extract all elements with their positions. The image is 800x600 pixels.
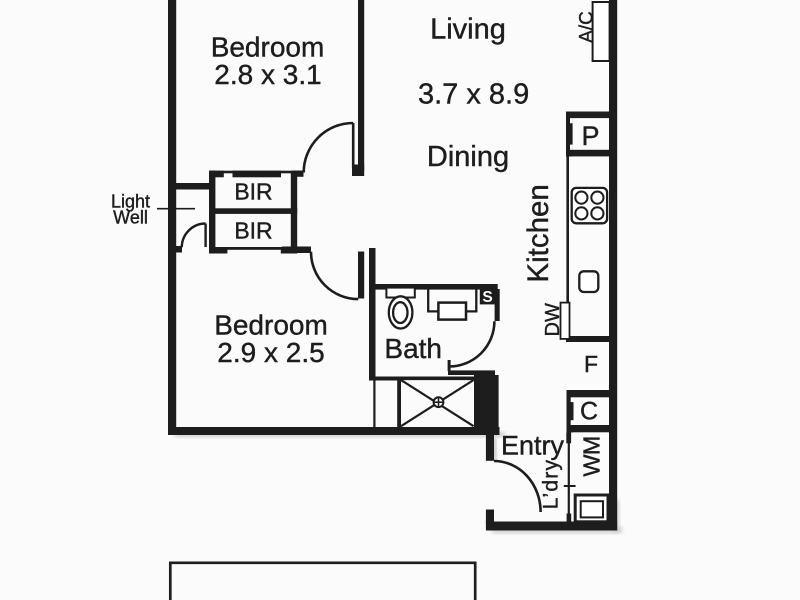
svg-text:Bedroom: Bedroom xyxy=(211,32,325,63)
svg-text:Well: Well xyxy=(113,208,148,228)
svg-text:L’dry: L’dry xyxy=(540,459,563,509)
svg-text:P: P xyxy=(581,121,599,151)
svg-text:F: F xyxy=(584,351,598,377)
svg-text:Bedroom: Bedroom xyxy=(214,310,328,341)
svg-text:C: C xyxy=(580,398,598,426)
svg-text:Dining: Dining xyxy=(427,141,509,173)
svg-text:Living: Living xyxy=(430,14,506,46)
svg-text:BIR: BIR xyxy=(234,218,272,244)
svg-text:WM: WM xyxy=(578,437,604,477)
svg-text:2.8 x 3.1: 2.8 x 3.1 xyxy=(214,59,321,90)
svg-text:S: S xyxy=(482,289,492,306)
svg-text:BIR: BIR xyxy=(234,179,272,205)
svg-text:3.7 x 8.9: 3.7 x 8.9 xyxy=(418,79,529,111)
svg-text:2.9 x 2.5: 2.9 x 2.5 xyxy=(217,337,324,368)
svg-text:Bath: Bath xyxy=(384,333,442,364)
svg-text:A/C: A/C xyxy=(577,11,598,43)
svg-text:Kitchen: Kitchen xyxy=(522,184,555,282)
svg-text:DW: DW xyxy=(542,303,564,336)
svg-text:Entry: Entry xyxy=(501,431,565,461)
